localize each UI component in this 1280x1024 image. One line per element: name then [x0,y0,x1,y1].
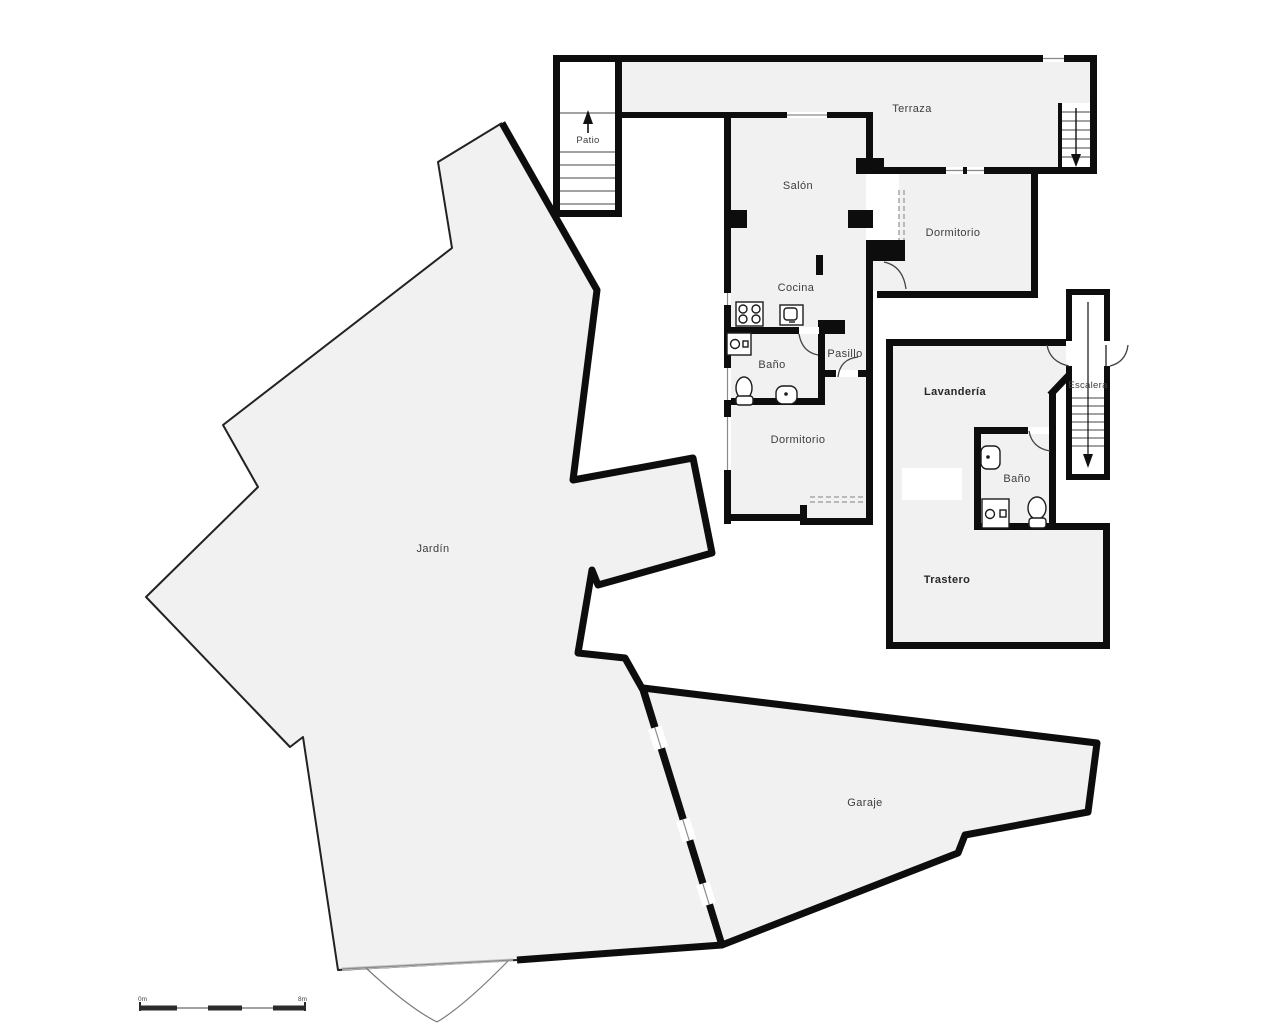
terraza-stairs [1058,103,1090,170]
washbasin-unit-icon [982,499,1009,528]
room-patio: Patio [560,62,615,210]
gate-door-arc-right [437,961,508,1022]
room-label-pasillo: Pasillo [827,348,862,360]
room-label-patio: Patio [576,135,599,146]
white-patch [902,468,962,500]
toilet-icon-1 [736,377,753,405]
annex-building: Lavandería Escalera Baño Trastero [886,289,1128,649]
toilet-icon-2 [1028,497,1046,528]
bathroom1-sink-icon [727,333,751,355]
room-label-dormitorio-2: Dormitorio [771,434,826,446]
scale-end-label: 8m [298,996,307,1003]
room-garaje: Garaje [643,688,1097,945]
room-label-terraza: Terraza [892,103,932,115]
scale-start-label: 0m [138,996,147,1003]
room-label-salon: Salón [783,180,813,192]
room-label-escalera: Escalera [1068,380,1108,391]
escalera-door-arc-right [1110,345,1128,366]
room-label-cocina: Cocina [778,282,815,294]
floorplan-canvas: Jardín Garaje Terraza [0,0,1280,1024]
bathroom2-sink-icon [981,446,1000,469]
room-label-bano-2: Baño [1003,473,1030,485]
garden-gate [342,960,513,1022]
room-label-lavanderia: Lavandería [924,386,987,398]
dormitorio2-bay-floor [807,495,866,518]
gate-door-arc-left [366,968,437,1022]
room-jardin: Jardín [146,123,722,1022]
room-label-dormitorio-1: Dormitorio [926,227,981,239]
room-label-bano-1: Baño [758,359,785,371]
kitchen-sink-icon [780,305,803,325]
room-label-garaje: Garaje [847,797,882,809]
room-label-jardin: Jardín [417,543,450,555]
scale-bar: 0m 8m [138,996,307,1011]
bidet-icon [776,386,797,404]
terrace-entry-recess [873,174,899,240]
stove-icon [736,302,763,326]
room-label-trastero: Trastero [924,574,971,586]
floorplan-page: Jardín Garaje Terraza [0,0,1280,1024]
